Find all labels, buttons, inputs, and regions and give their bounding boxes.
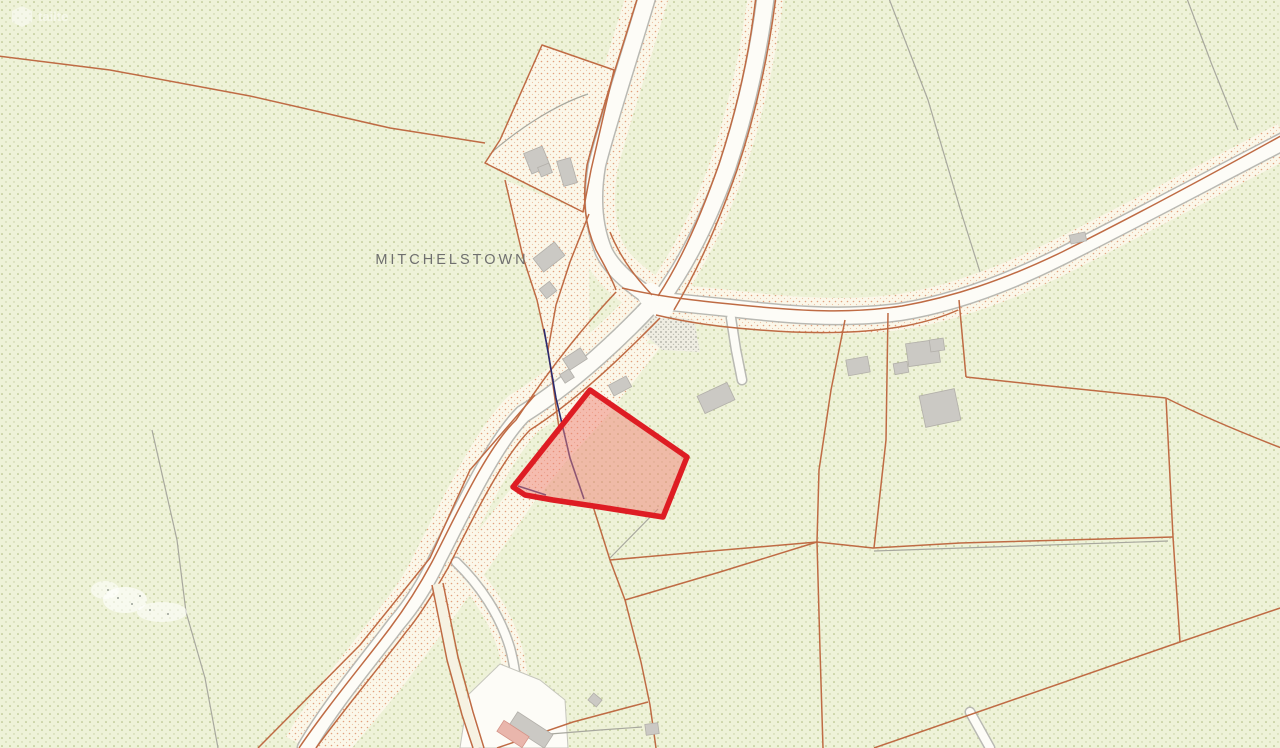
map-canvas[interactable]: MITCHELSTOWN tailte bbox=[0, 0, 1280, 748]
map-svg: MITCHELSTOWN tailte bbox=[0, 0, 1280, 748]
map-background bbox=[0, 0, 1280, 748]
watermark-text: tailte bbox=[38, 9, 68, 24]
watermark: tailte bbox=[12, 6, 68, 27]
place-label: MITCHELSTOWN bbox=[375, 252, 528, 268]
